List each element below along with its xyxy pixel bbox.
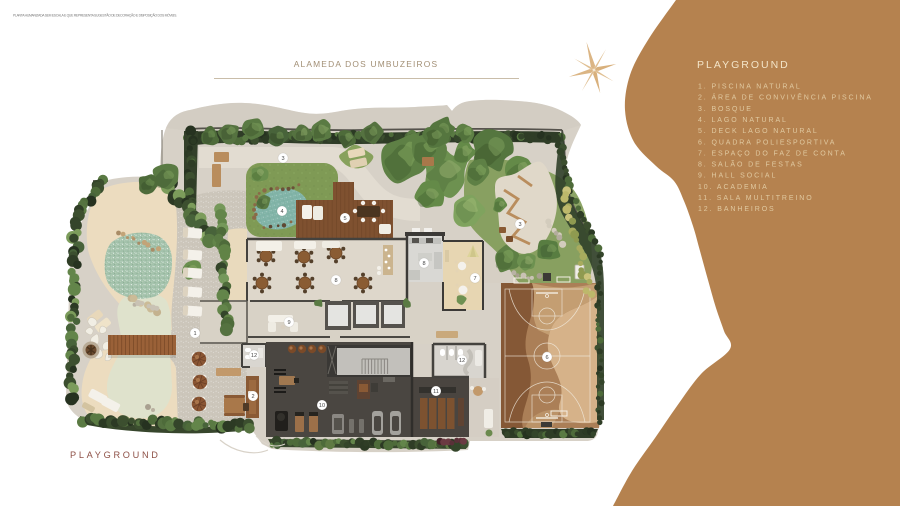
svg-text:5: 5: [343, 216, 346, 222]
svg-text:PLAYGROUND: PLAYGROUND: [70, 450, 161, 460]
svg-text:8. SALÃO DE FESTAS: 8. SALÃO DE FESTAS: [698, 160, 804, 169]
svg-text:4: 4: [280, 209, 283, 215]
svg-text:8: 8: [422, 261, 425, 267]
svg-text:4. LAGO NATURAL: 4. LAGO NATURAL: [698, 117, 788, 124]
svg-text:7: 7: [473, 276, 476, 282]
svg-text:9. HALL SOCIAL: 9. HALL SOCIAL: [698, 173, 777, 180]
svg-text:9: 9: [287, 320, 290, 326]
svg-text:7. ESPAÇO DO FAZ DE CONTA: 7. ESPAÇO DO FAZ DE CONTA: [698, 150, 847, 157]
svg-text:ALAMEDA DOS UMBUZEIROS: ALAMEDA DOS UMBUZEIROS: [294, 59, 439, 69]
svg-text:3: 3: [281, 156, 284, 162]
svg-text:8: 8: [334, 278, 337, 284]
svg-text:1. PISCINA NATURAL: 1. PISCINA NATURAL: [698, 84, 802, 91]
svg-text:6: 6: [545, 355, 548, 361]
svg-text:2. ÁREA DE CONVIVÊNCIA PISCINA: 2. ÁREA DE CONVIVÊNCIA PISCINA: [698, 93, 873, 102]
svg-text:PLANTA HUMANIZADA SEM ESCALA E: PLANTA HUMANIZADA SEM ESCALA E QUE REPRE…: [13, 13, 177, 18]
svg-text:6. QUADRA POLIESPORTIVA: 6. QUADRA POLIESPORTIVA: [698, 139, 836, 146]
svg-text:10: 10: [319, 403, 325, 409]
svg-text:1: 1: [193, 331, 196, 337]
svg-text:12: 12: [459, 358, 465, 364]
svg-text:3: 3: [518, 222, 521, 228]
svg-text:11: 11: [433, 389, 439, 395]
svg-text:5. DECK LAGO NATURAL: 5. DECK LAGO NATURAL: [698, 128, 819, 135]
svg-text:12: 12: [251, 353, 257, 359]
svg-text:2: 2: [251, 394, 254, 400]
svg-text:10. ACADEMIA: 10. ACADEMIA: [698, 184, 769, 191]
svg-text:11. SALA MULTITREINO: 11. SALA MULTITREINO: [698, 195, 814, 202]
svg-text:12. BANHEIROS: 12. BANHEIROS: [698, 206, 776, 213]
svg-text:3. BOSQUE: 3. BOSQUE: [698, 106, 753, 113]
svg-text:PLAYGROUND: PLAYGROUND: [697, 59, 790, 71]
